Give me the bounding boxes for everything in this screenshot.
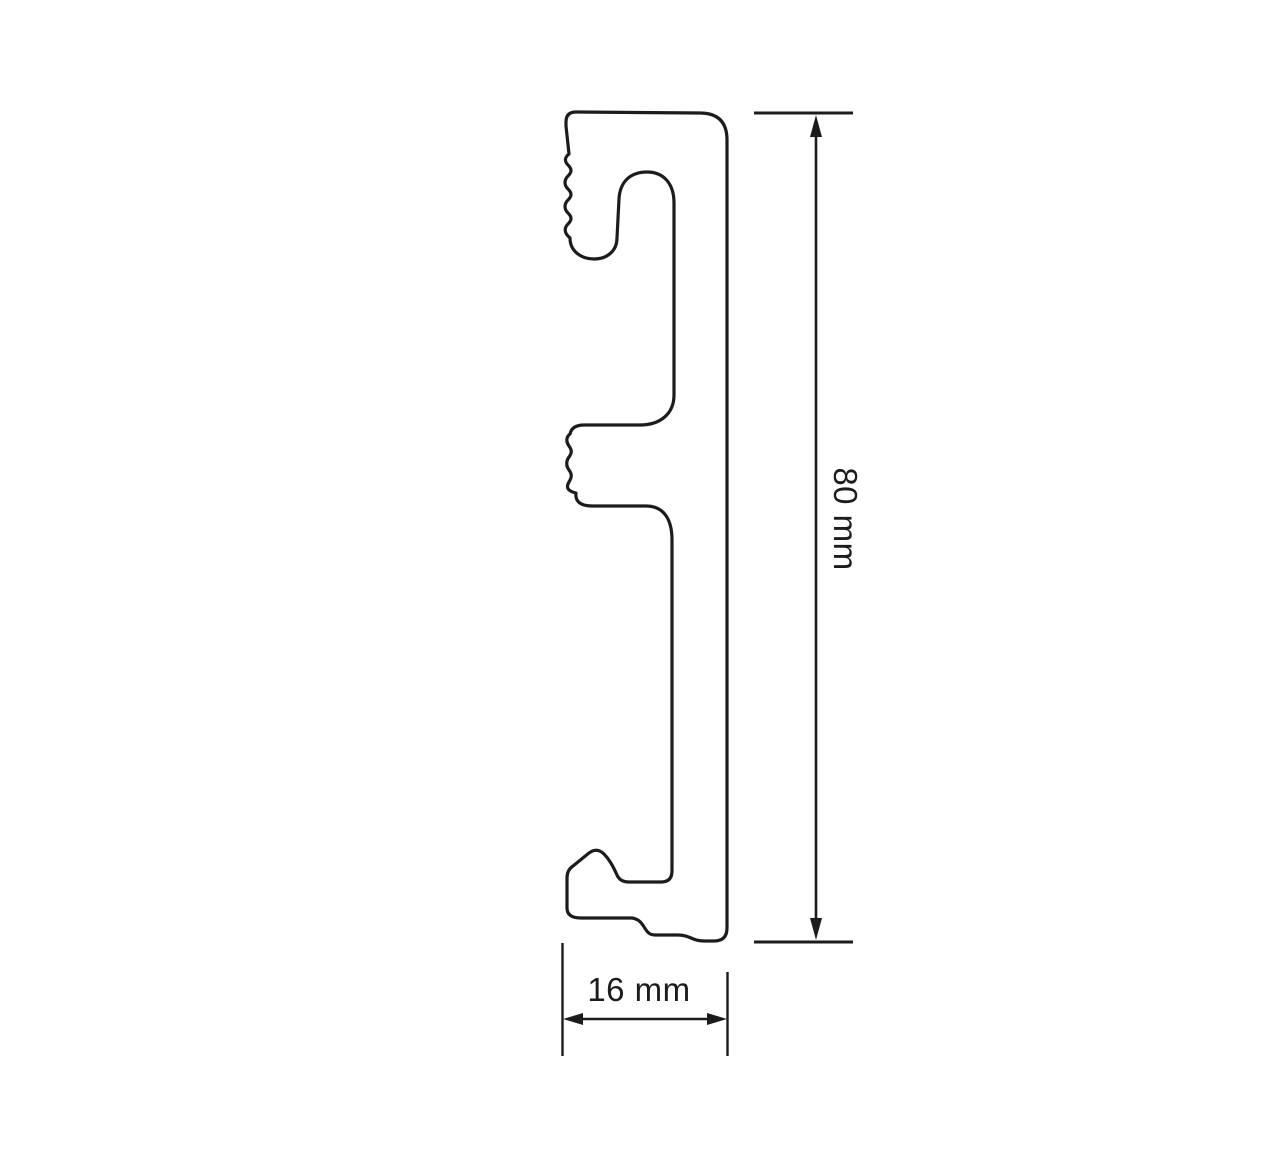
width-arrow-left-icon [563,1013,583,1025]
profile-cross-section-drawing: 80 mm 16 mm [0,0,1280,1150]
height-dimension-label: 80 mm [827,467,864,570]
profile-outline-group [565,112,727,941]
width-dimension: 16 mm [563,943,728,1056]
profile-outline [565,112,727,941]
height-arrow-up-icon [810,115,822,137]
height-dimension: 80 mm [754,113,864,942]
width-dimension-label: 16 mm [587,971,690,1008]
width-arrow-right-icon [707,1013,727,1025]
height-arrow-down-icon [810,918,822,940]
technical-drawing-canvas: 80 mm 16 mm [0,0,1280,1150]
